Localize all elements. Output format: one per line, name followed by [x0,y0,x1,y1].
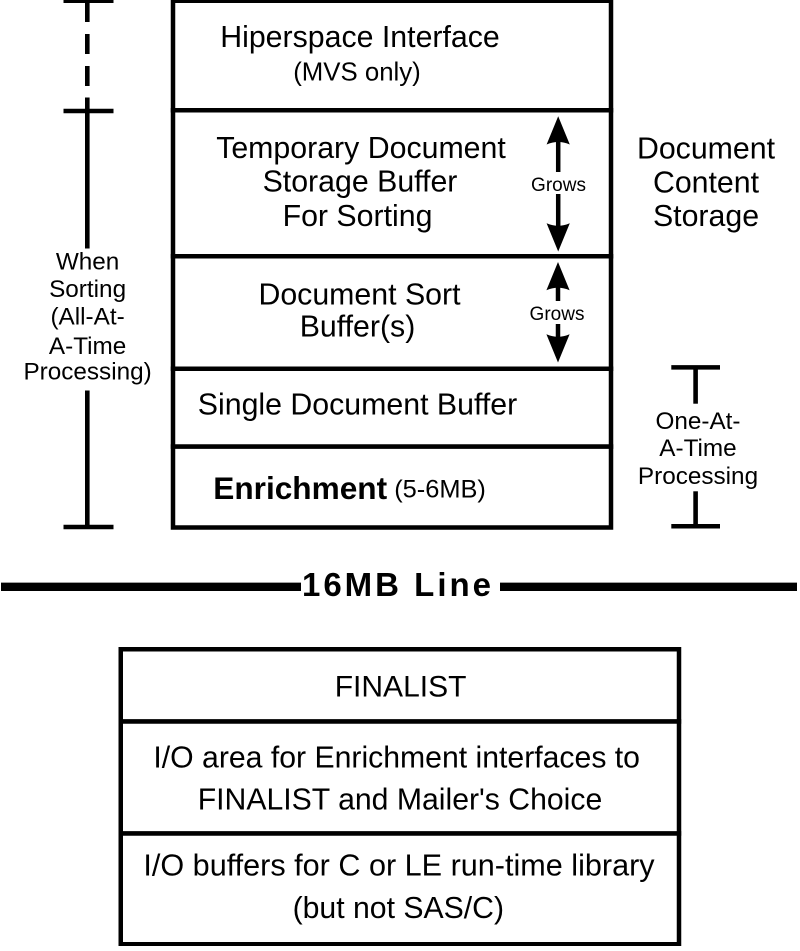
svg-text:(5-6MB): (5-6MB) [394,476,486,504]
svg-text:Processing: Processing [638,463,758,490]
svg-text:Temporary Document: Temporary Document [216,132,506,165]
svg-text:Processing): Processing) [23,359,151,386]
svg-text:I/O buffers for C or LE run-ti: I/O buffers for C or LE run-time library [143,848,655,882]
svg-text:16MB Line: 16MB Line [302,566,494,603]
svg-text:Grows: Grows [531,175,586,196]
svg-text:For Sorting: For Sorting [283,200,433,233]
svg-text:Grows: Grows [530,304,585,325]
svg-text:Hiperspace Interface: Hiperspace Interface [220,21,500,54]
svg-text:Document: Document [637,133,776,166]
svg-text:(MVS only): (MVS only) [293,58,421,86]
svg-text:FINALIST: FINALIST [335,670,467,703]
svg-text:One-At-: One-At- [655,408,740,435]
svg-text:Buffer(s): Buffer(s) [300,310,416,343]
svg-text:Single Document Buffer: Single Document Buffer [198,388,517,421]
svg-text:Sorting: Sorting [49,276,126,303]
svg-text:A-Time: A-Time [659,435,736,462]
svg-text:When: When [56,249,119,276]
svg-text:(but not SAS/C): (but not SAS/C) [293,892,504,925]
svg-text:Storage Buffer: Storage Buffer [263,166,458,199]
svg-text:FINALIST and Mailer's Choice: FINALIST and Mailer's Choice [198,783,603,816]
svg-text:A-Time: A-Time [49,333,126,360]
svg-text:Storage: Storage [653,200,759,233]
svg-text:(All-At-: (All-At- [50,304,124,331]
svg-text:Content: Content [653,167,760,200]
svg-text:Document Sort: Document Sort [258,278,461,311]
svg-text:I/O area for Enrichment interf: I/O area for Enrichment interfaces to [153,741,640,774]
svg-text:Enrichment: Enrichment [213,470,387,506]
